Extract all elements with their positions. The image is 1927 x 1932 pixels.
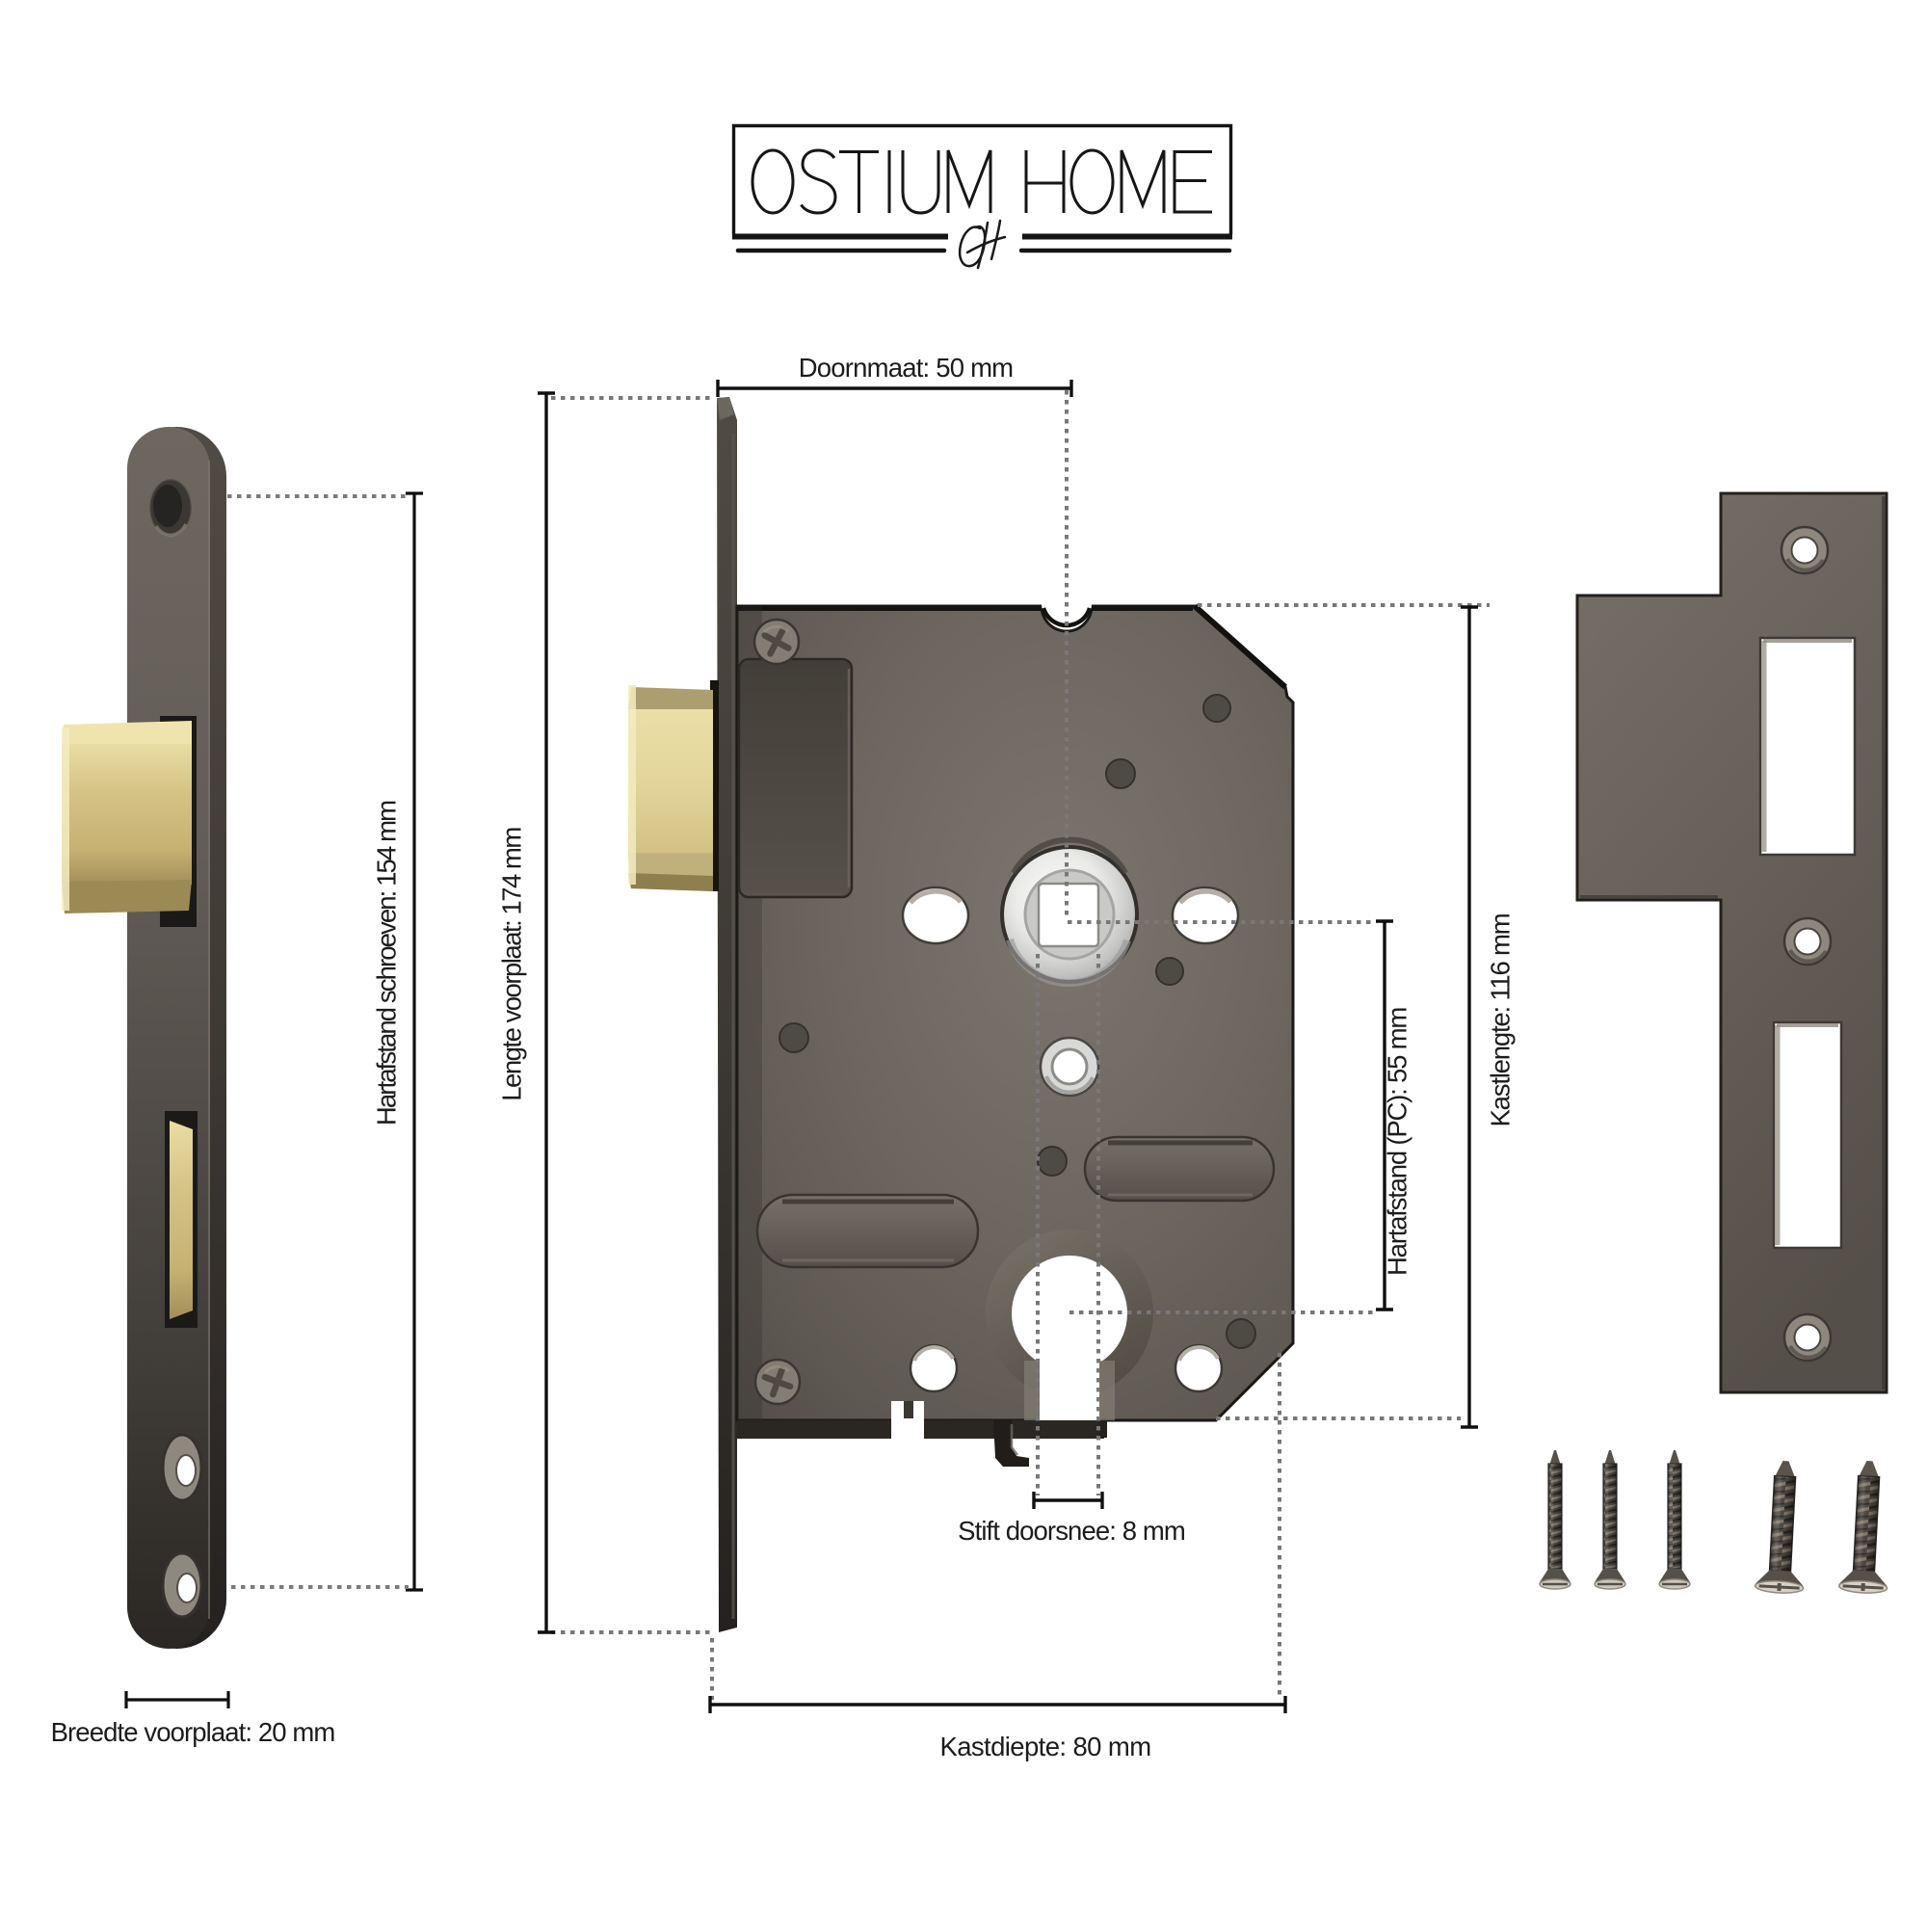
svg-text:Breedte voorplaat: 20 mm: Breedte voorplaat: 20 mm: [51, 1717, 335, 1747]
svg-text:Hartafstand (PC): 55 mm: Hartafstand (PC): 55 mm: [1383, 1008, 1412, 1276]
svg-text:Lengte voorplaat: 174 mm: Lengte voorplaat: 174 mm: [497, 828, 527, 1101]
svg-text:Kastdiepte: 80 mm: Kastdiepte: 80 mm: [939, 1732, 1150, 1761]
svg-text:Stift doorsnee: 8 mm: Stift doorsnee: 8 mm: [958, 1516, 1185, 1546]
svg-text:Doornmaat: 50 mm: Doornmaat: 50 mm: [799, 353, 1014, 383]
svg-text:Hartafstand schroeven: 154 mm: Hartafstand schroeven: 154 mm: [372, 801, 402, 1125]
svg-text:Kastlengte: 116 mm: Kastlengte: 116 mm: [1486, 913, 1516, 1126]
